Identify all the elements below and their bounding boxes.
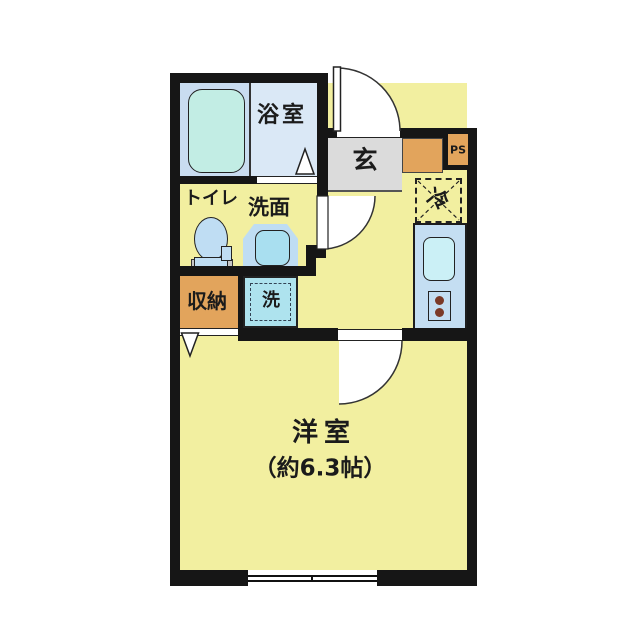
room-label-pipe-space: PS <box>450 145 466 156</box>
room-label-washstand: 洗面 <box>248 198 290 219</box>
floor-plan: 浴室 玄 PS 冷 トイレ 洗面 収納 洗 洋室 （約6.3帖） <box>0 0 640 640</box>
room-size-main-room: （約6.3帖） <box>254 458 387 481</box>
room-label-laundry: 洗 <box>262 292 280 310</box>
washroom-door-swing-area <box>322 196 375 249</box>
room-label-entrance: 玄 <box>352 148 377 173</box>
room-label-storage: 収納 <box>187 291 227 311</box>
mainroom-door-swing-area <box>339 341 402 404</box>
entrance-door-swing-area <box>337 68 400 131</box>
room-label-bathroom: 浴室 <box>257 105 307 127</box>
washroom-door-leaf-icon <box>317 196 328 249</box>
entrance-door-leaf-icon <box>334 67 341 131</box>
room-label-toilet: トイレ <box>184 190 238 208</box>
room-label-main-room: 洋室 <box>292 420 356 446</box>
closet-folding-door-triangle-icon <box>182 333 199 356</box>
bathroom-folding-door-triangle-icon <box>296 149 314 174</box>
door-symbols-layer <box>0 0 640 640</box>
